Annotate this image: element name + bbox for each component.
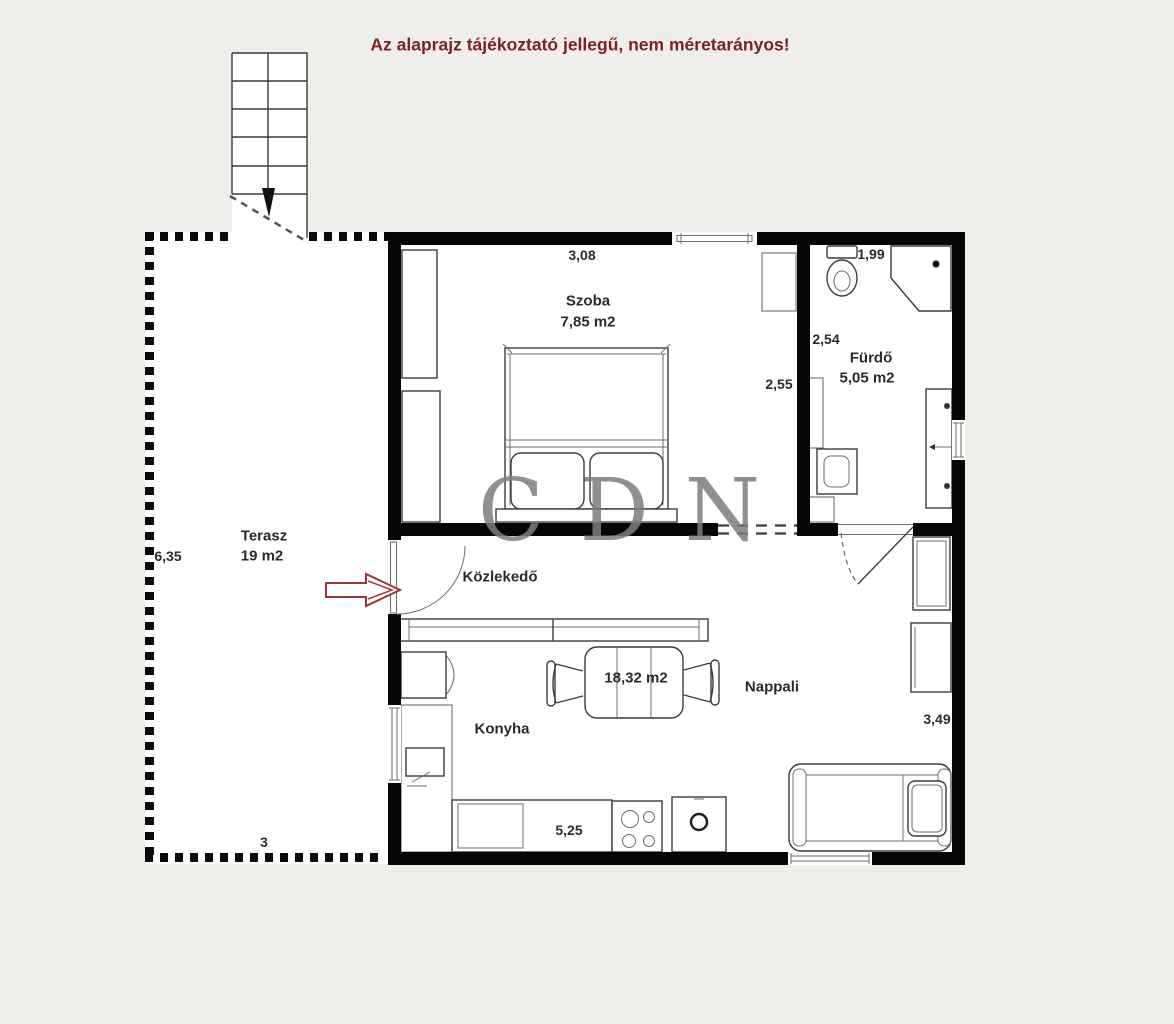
kitchen-cabinet-upper xyxy=(401,652,454,698)
wall-bathroom-bottom-right xyxy=(913,523,965,536)
wardrobe xyxy=(402,391,440,522)
window-gap xyxy=(952,420,965,460)
window-gap xyxy=(672,232,757,245)
dim-furdo-width: 1,99 xyxy=(857,246,884,262)
label-nappali: Nappali xyxy=(745,679,799,696)
floor-plan-page: CDN Az alaprajz tájékoztató jellegű, nem… xyxy=(0,0,1174,1024)
faucet xyxy=(944,403,950,409)
chair-backrest xyxy=(547,661,555,706)
sideboard-top xyxy=(400,619,708,641)
cabinet xyxy=(913,537,950,610)
label-konyha: Konyha xyxy=(474,721,529,738)
toilet xyxy=(827,246,857,296)
wall-bathroom-left xyxy=(797,232,810,536)
dim-terasz-depth: 6,35 xyxy=(154,548,181,564)
dim-terasz-width: 3 xyxy=(260,834,268,850)
shower-drain xyxy=(933,261,940,268)
watermark: CDN xyxy=(478,468,796,554)
shelf-niche xyxy=(762,253,796,311)
dim-szoba-width: 3,08 xyxy=(568,247,595,263)
bedroom-window xyxy=(672,232,757,245)
wall-bottom xyxy=(388,852,965,865)
door-leaf xyxy=(391,542,397,613)
label-furdo: Fürdő xyxy=(850,350,893,367)
toilet-tank xyxy=(827,246,857,258)
kitchen-counter-left xyxy=(401,705,452,852)
wardrobe xyxy=(402,250,437,378)
dim-nappali-depth: 3,49 xyxy=(923,711,950,727)
page-title: Az alaprajz tájékoztató jellegű, nem mér… xyxy=(370,35,789,56)
cabinet-body xyxy=(401,652,446,698)
kitchen-counter-bottom xyxy=(452,800,612,852)
chair-backrest xyxy=(711,660,719,705)
label-furdo-area: 5,05 m2 xyxy=(839,370,894,387)
stove-body xyxy=(612,801,662,852)
faucet xyxy=(944,483,950,489)
label-szoba-area: 7,85 m2 xyxy=(560,314,615,331)
window-gap xyxy=(388,705,401,783)
bathroom-cabinet xyxy=(808,378,823,448)
washing-machine xyxy=(817,449,857,494)
wall-right xyxy=(952,232,965,865)
bathroom-window xyxy=(952,420,965,460)
window-gap xyxy=(788,852,872,865)
vanity-counter xyxy=(926,389,952,508)
label-terasz: Terasz xyxy=(241,528,287,545)
counter-top xyxy=(452,800,612,852)
living-room-window xyxy=(788,852,872,865)
cabinet xyxy=(911,623,951,692)
label-kozlekedo: Közlekedő xyxy=(462,569,537,586)
dim-szoba-depth: 2,55 xyxy=(765,376,792,392)
sink-basin xyxy=(406,748,444,776)
dim-konyha-width: 5,25 xyxy=(555,822,582,838)
bathroom-cabinet-small xyxy=(808,497,834,522)
kitchen-window xyxy=(388,705,401,783)
staircase xyxy=(230,53,307,240)
sofa-pillow xyxy=(908,781,946,836)
dim-furdo-depth: 2,54 xyxy=(812,331,839,347)
wall-bathroom-bottom-left xyxy=(810,523,838,536)
sofa-daybed xyxy=(789,764,951,851)
label-szoba: Szoba xyxy=(566,293,610,310)
label-nappali-area: 18,32 m2 xyxy=(604,670,667,687)
stove xyxy=(612,801,662,852)
sideboard-counter xyxy=(400,619,708,641)
label-terasz-area: 19 m2 xyxy=(241,548,284,565)
